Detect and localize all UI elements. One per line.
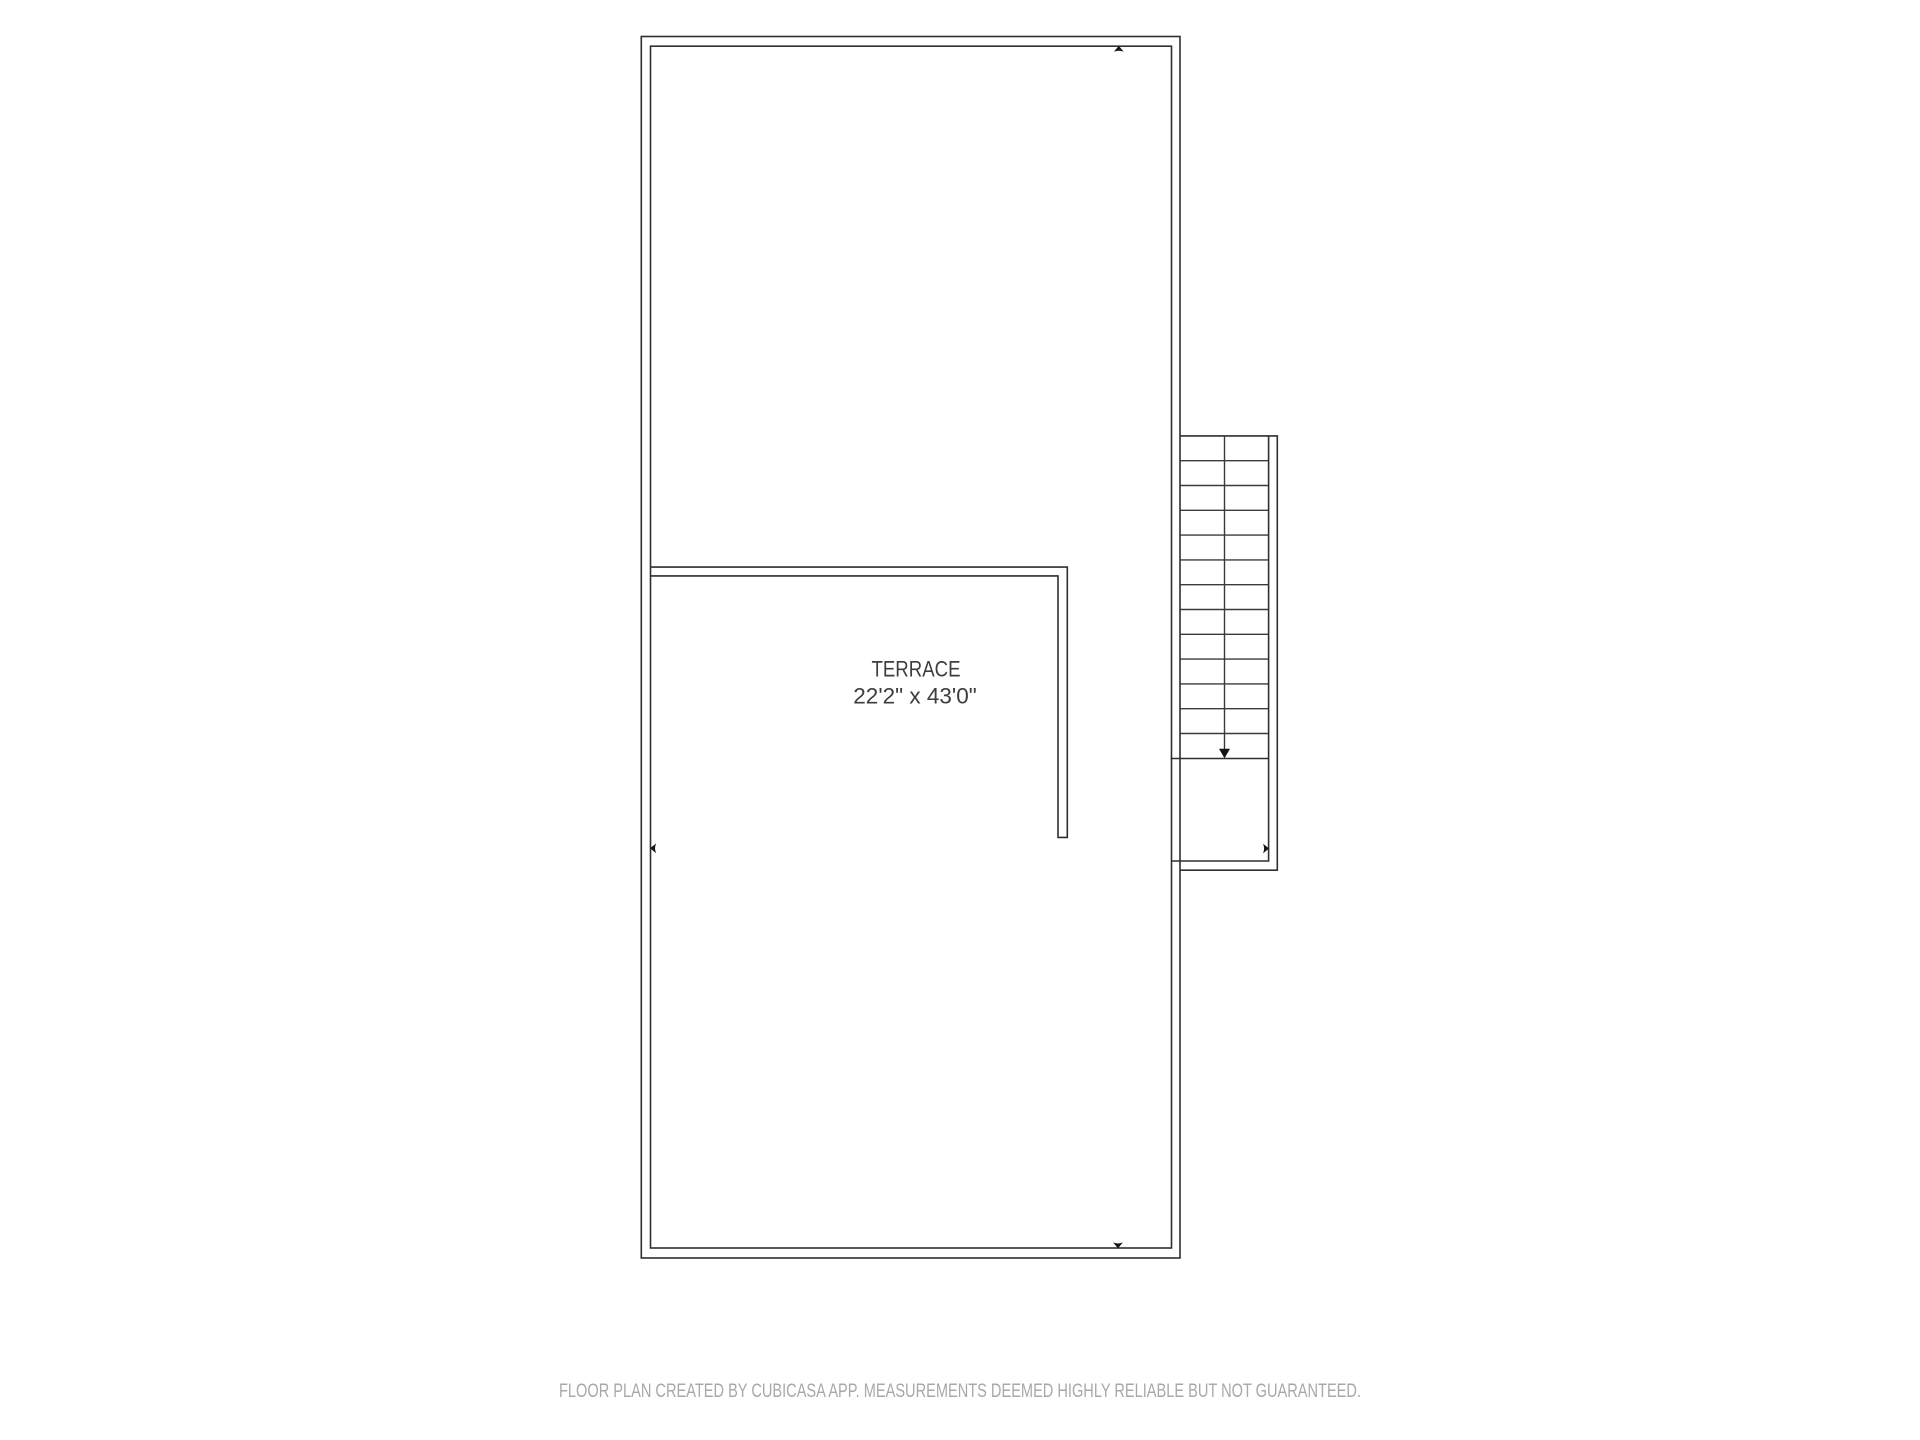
svg-text:TERRACE: TERRACE	[872, 656, 961, 681]
svg-text:FLOOR PLAN CREATED BY CUBICASA: FLOOR PLAN CREATED BY CUBICASA APP. MEAS…	[559, 1381, 1361, 1402]
svg-text:22'2" x 43'0": 22'2" x 43'0"	[853, 684, 976, 709]
